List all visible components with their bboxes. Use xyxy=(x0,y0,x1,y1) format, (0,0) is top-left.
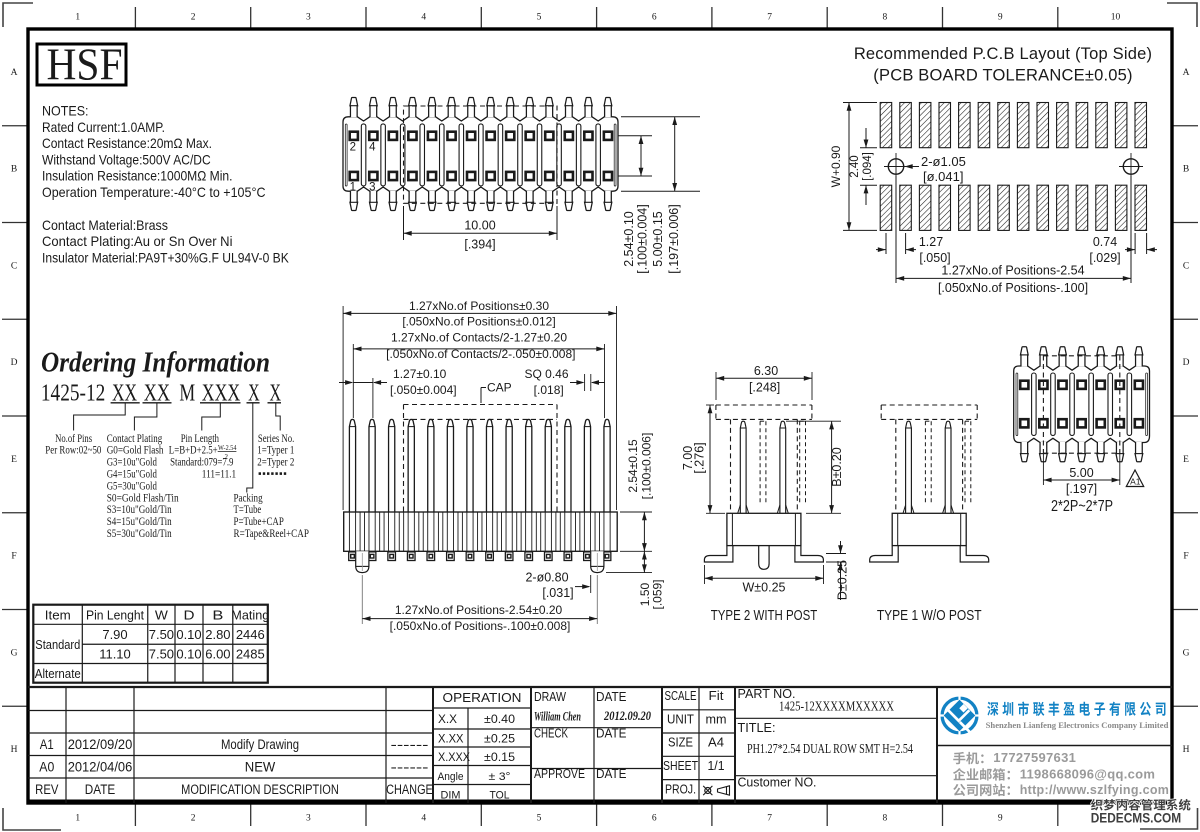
svg-text:H: H xyxy=(11,745,18,755)
svg-text:UNIT: UNIT xyxy=(667,712,694,726)
svg-text:E: E xyxy=(11,455,17,465)
svg-text:4: 4 xyxy=(421,814,426,824)
svg-text:1: 1 xyxy=(350,181,356,193)
svg-text:[.050±0.004]: [.050±0.004] xyxy=(390,383,457,397)
svg-text:Item: Item xyxy=(45,607,71,622)
svg-text:5.00±0.15: 5.00±0.15 xyxy=(651,211,665,267)
svg-text:2.80: 2.80 xyxy=(205,627,230,642)
svg-text:3: 3 xyxy=(306,13,311,23)
svg-text:7: 7 xyxy=(767,13,772,23)
svg-text:DATE: DATE xyxy=(596,766,627,781)
svg-text:2.54±0.15: 2.54±0.15 xyxy=(626,439,640,493)
svg-text:B: B xyxy=(212,607,223,622)
svg-text:2=Typer 2: 2=Typer 2 xyxy=(257,455,294,469)
svg-text:Contact Material:Brass: Contact Material:Brass xyxy=(42,217,168,233)
svg-text:[.059]: [.059] xyxy=(651,579,665,609)
svg-text:7.50: 7.50 xyxy=(149,646,174,661)
svg-text:SIZE: SIZE xyxy=(668,736,693,750)
svg-text:6: 6 xyxy=(652,814,657,824)
svg-text:Recommended P.C.B Layout (Top: Recommended P.C.B Layout (Top Side) xyxy=(854,45,1152,63)
svg-text:6.00: 6.00 xyxy=(205,646,230,661)
svg-text:DATE: DATE xyxy=(85,782,116,797)
svg-text:2: 2 xyxy=(350,141,356,153)
svg-text:SQ 0.46: SQ 0.46 xyxy=(524,367,568,381)
svg-text:2: 2 xyxy=(191,13,196,23)
svg-text:DEDECMS.COM: DEDECMS.COM xyxy=(1091,811,1182,826)
svg-text:DRAW: DRAW xyxy=(534,689,567,704)
svg-text:G: G xyxy=(1183,648,1190,658)
svg-text:2-ø1.05: 2-ø1.05 xyxy=(921,154,966,169)
svg-text:2012/04/06: 2012/04/06 xyxy=(68,760,133,775)
svg-text:D: D xyxy=(11,358,18,368)
svg-text:6.30: 6.30 xyxy=(754,364,778,378)
svg-text:2485: 2485 xyxy=(236,646,265,661)
svg-text:[.050xNo.of Positions-.100]: [.050xNo.of Positions-.100] xyxy=(938,281,1088,295)
svg-text:1: 1 xyxy=(75,13,80,23)
svg-text:[.100±0.006]: [.100±0.006] xyxy=(640,433,654,500)
svg-text:G: G xyxy=(11,648,18,658)
svg-text:REV: REV xyxy=(35,782,58,797)
svg-text:mm: mm xyxy=(706,712,727,726)
svg-text:Modify Drawing: Modify Drawing xyxy=(221,737,299,752)
svg-text:111=11.1: 111=11.1 xyxy=(202,467,236,481)
svg-text:2.54±0.10: 2.54±0.10 xyxy=(622,211,636,267)
svg-text:SHEET: SHEET xyxy=(663,759,698,773)
svg-text:Insulation Resistance:1000MΩ M: Insulation Resistance:1000MΩ Min. xyxy=(42,168,233,184)
svg-text:SCALE: SCALE xyxy=(665,689,697,703)
svg-text:8: 8 xyxy=(883,13,888,23)
svg-text:X.XX: X.XX xyxy=(438,732,464,746)
svg-text:B±0.20: B±0.20 xyxy=(830,447,844,487)
svg-text:TITLE:: TITLE: xyxy=(738,720,776,735)
svg-text:± 3°: ± 3° xyxy=(489,771,511,783)
svg-text:William Chen: William Chen xyxy=(534,709,581,724)
svg-text:A1: A1 xyxy=(40,737,54,752)
svg-text:±0.15: ±0.15 xyxy=(484,750,515,764)
svg-text:HSF: HSF xyxy=(47,40,123,90)
svg-text:[.031]: [.031] xyxy=(542,586,573,600)
svg-text:7.90: 7.90 xyxy=(102,627,127,642)
svg-text:[.050xNo.of Positions±0.012]: [.050xNo.of Positions±0.012] xyxy=(402,315,555,329)
svg-text:MODIFICATION DESCRIPTION: MODIFICATION DESCRIPTION xyxy=(181,782,339,797)
svg-text:D: D xyxy=(184,607,195,622)
svg-text:[.100±0.004]: [.100±0.004] xyxy=(636,204,650,273)
svg-text:Per Row:02~50: Per Row:02~50 xyxy=(45,443,101,457)
svg-text:17727597631: 17727597631 xyxy=(993,750,1076,765)
svg-text:[.276]: [.276] xyxy=(693,442,707,473)
svg-text:0.10: 0.10 xyxy=(176,627,201,642)
svg-text:[.394]: [.394] xyxy=(464,238,495,252)
svg-text:1.27xNo.of Contacts/2-1.27±0.2: 1.27xNo.of Contacts/2-1.27±0.20 xyxy=(391,330,567,344)
svg-text:1: 1 xyxy=(75,814,80,824)
svg-text:Customer NO.: Customer NO. xyxy=(738,775,817,790)
svg-text:CHECK: CHECK xyxy=(534,726,568,741)
svg-text:Shenzhen Lianfeng Electronics: Shenzhen Lianfeng Electronics Company Li… xyxy=(986,720,1169,730)
svg-text:11.10: 11.10 xyxy=(99,646,131,661)
svg-text:6: 6 xyxy=(652,13,657,23)
svg-text:0.10: 0.10 xyxy=(176,646,201,661)
svg-text:4: 4 xyxy=(369,141,376,153)
svg-text:DATE: DATE xyxy=(596,689,627,704)
svg-text:Operation Temperature:-40°C to: Operation Temperature:-40°C to +105°C xyxy=(42,184,266,200)
svg-text:Ordering Information: Ordering Information xyxy=(41,348,270,379)
svg-text:7.50: 7.50 xyxy=(149,627,174,642)
svg-text:X.XXX: X.XXX xyxy=(438,750,470,764)
svg-text:------: ------ xyxy=(391,760,429,775)
svg-text:TYPE 2 WITH POST: TYPE 2 WITH POST xyxy=(711,608,818,624)
svg-text:1425-12: 1425-12 xyxy=(41,380,105,406)
svg-text:APPROVE: APPROVE xyxy=(534,766,585,781)
svg-text:5: 5 xyxy=(537,814,542,824)
svg-text:1.27xNo.of Positions-2.54: 1.27xNo.of Positions-2.54 xyxy=(941,264,1084,278)
svg-text:D±0.25: D±0.25 xyxy=(836,560,850,600)
svg-text:F: F xyxy=(11,552,16,562)
svg-text:5.00: 5.00 xyxy=(1069,466,1093,480)
svg-text:PH1.27*2.54 DUAL ROW SMT H=2.5: PH1.27*2.54 DUAL ROW SMT H=2.54 xyxy=(747,741,913,756)
svg-text:NOTES:: NOTES: xyxy=(42,103,89,119)
svg-text:Withstand Voltage:500V AC/DC: Withstand Voltage:500V AC/DC xyxy=(42,151,211,167)
svg-text:C: C xyxy=(1183,261,1189,271)
svg-text:http://www.szlfying.com: http://www.szlfying.com xyxy=(1020,783,1169,797)
svg-text:Alternate: Alternate xyxy=(35,666,81,681)
svg-text:H: H xyxy=(1183,745,1190,755)
svg-text:CHANGE: CHANGE xyxy=(386,782,433,797)
svg-text:3: 3 xyxy=(369,181,375,193)
svg-text:Rated Current:1.0AMP.: Rated Current:1.0AMP. xyxy=(42,119,165,135)
svg-text:Contact Plating:Au or Sn Over: Contact Plating:Au or Sn Over Ni xyxy=(42,233,233,249)
svg-text:2446: 2446 xyxy=(236,627,265,642)
svg-text:Contact Resistance:20mΩ Max.: Contact Resistance:20mΩ Max. xyxy=(42,135,212,151)
svg-text:10.00: 10.00 xyxy=(464,219,495,233)
svg-text:TOL: TOL xyxy=(490,790,510,802)
svg-text:W-2.54: W-2.54 xyxy=(218,444,237,452)
svg-text:2012.09.20: 2012.09.20 xyxy=(603,709,651,723)
svg-text:2-ø0.80: 2-ø0.80 xyxy=(525,571,568,585)
svg-text:[.197]: [.197] xyxy=(1066,482,1097,496)
svg-text:DIM: DIM xyxy=(441,790,461,802)
svg-text:CAP: CAP xyxy=(487,381,512,395)
svg-text:±0.40: ±0.40 xyxy=(484,712,515,726)
svg-text:D: D xyxy=(1183,358,1190,368)
svg-text:A: A xyxy=(1183,68,1190,78)
svg-text:7: 7 xyxy=(767,814,772,824)
svg-text:1/1: 1/1 xyxy=(708,759,725,773)
svg-text:8: 8 xyxy=(883,814,888,824)
svg-text:2*2P~2*7P: 2*2P~2*7P xyxy=(1051,498,1113,515)
svg-text:W±0.25: W±0.25 xyxy=(743,581,786,595)
svg-text:1.27xNo.of Positions±0.30: 1.27xNo.of Positions±0.30 xyxy=(409,299,549,313)
svg-text:[.197±0.006]: [.197±0.006] xyxy=(667,204,681,273)
svg-text:DATE: DATE xyxy=(596,726,627,741)
svg-text:W+0.90: W+0.90 xyxy=(829,145,843,187)
svg-text:Insulator Material:PA9T+30%G.F: Insulator Material:PA9T+30%G.F UL94V-0 B… xyxy=(42,249,289,265)
svg-text:------: ------ xyxy=(391,737,429,752)
svg-text:1.27xNo.of Positions-2.54±0.20: 1.27xNo.of Positions-2.54±0.20 xyxy=(395,603,563,617)
svg-text:3: 3 xyxy=(306,814,311,824)
svg-text:B: B xyxy=(1183,165,1189,175)
svg-text:[.094]: [.094] xyxy=(862,152,874,181)
svg-text:1198668096@qq.com: 1198668096@qq.com xyxy=(1020,767,1156,782)
svg-text:[.050xNo.of Positions-.100±0.0: [.050xNo.of Positions-.100±0.008] xyxy=(390,619,571,633)
svg-text:9: 9 xyxy=(998,13,1003,23)
svg-text:±0.25: ±0.25 xyxy=(484,732,515,746)
svg-text:W: W xyxy=(155,607,169,622)
svg-text:A4: A4 xyxy=(708,736,724,750)
svg-text:[.018]: [.018] xyxy=(534,383,564,397)
svg-text:4: 4 xyxy=(421,13,426,23)
svg-text:A: A xyxy=(11,68,18,78)
svg-text:[.248]: [.248] xyxy=(749,381,780,395)
svg-text:S5=30u"Gold/Tin: S5=30u"Gold/Tin xyxy=(107,526,172,540)
svg-text:OPERATION: OPERATION xyxy=(443,690,522,705)
svg-text:2.40: 2.40 xyxy=(849,155,861,177)
svg-text:[ø.041]: [ø.041] xyxy=(923,169,963,184)
svg-text:X.X: X.X xyxy=(438,712,457,726)
svg-text:A1: A1 xyxy=(1130,476,1141,486)
svg-text:Angle: Angle xyxy=(438,771,464,783)
svg-text:F: F xyxy=(1183,552,1188,562)
svg-text:9: 9 xyxy=(998,814,1003,824)
svg-text:1.27±0.10: 1.27±0.10 xyxy=(393,367,447,381)
svg-text:[.050xNo.of Contacts/2-.050±0.: [.050xNo.of Contacts/2-.050±0.008] xyxy=(386,347,575,361)
svg-text:TYPE 1 W/O POST: TYPE 1 W/O POST xyxy=(877,608,982,624)
svg-text:5: 5 xyxy=(537,13,542,23)
svg-text:Pin Lenght: Pin Lenght xyxy=(86,607,144,622)
svg-text:2: 2 xyxy=(191,814,196,824)
svg-text:A0: A0 xyxy=(39,760,54,775)
svg-text:Mating: Mating xyxy=(231,607,269,622)
svg-text:NEW: NEW xyxy=(245,760,276,775)
svg-text:R=Tape&Reel+CAP: R=Tape&Reel+CAP xyxy=(234,526,310,540)
svg-text:PROJ.: PROJ. xyxy=(665,782,696,796)
svg-text:10: 10 xyxy=(1111,13,1121,23)
svg-text:0.74: 0.74 xyxy=(1093,235,1117,249)
svg-text:E: E xyxy=(1183,455,1189,465)
svg-text:(PCB BOARD TOLERANCE±0.05): (PCB BOARD TOLERANCE±0.05) xyxy=(873,67,1132,85)
svg-text:1425-12XXXXMXXXXX: 1425-12XXXXMXXXXX xyxy=(779,700,894,715)
svg-text:[.029]: [.029] xyxy=(1089,251,1120,265)
svg-text:Fit: Fit xyxy=(709,689,725,703)
svg-text:M: M xyxy=(179,380,195,406)
svg-text:1.27: 1.27 xyxy=(919,235,943,249)
svg-text:B: B xyxy=(11,165,17,175)
svg-text:Standard: Standard xyxy=(35,637,80,652)
svg-text:2012/09/20: 2012/09/20 xyxy=(68,737,133,752)
svg-text:C: C xyxy=(11,261,17,271)
